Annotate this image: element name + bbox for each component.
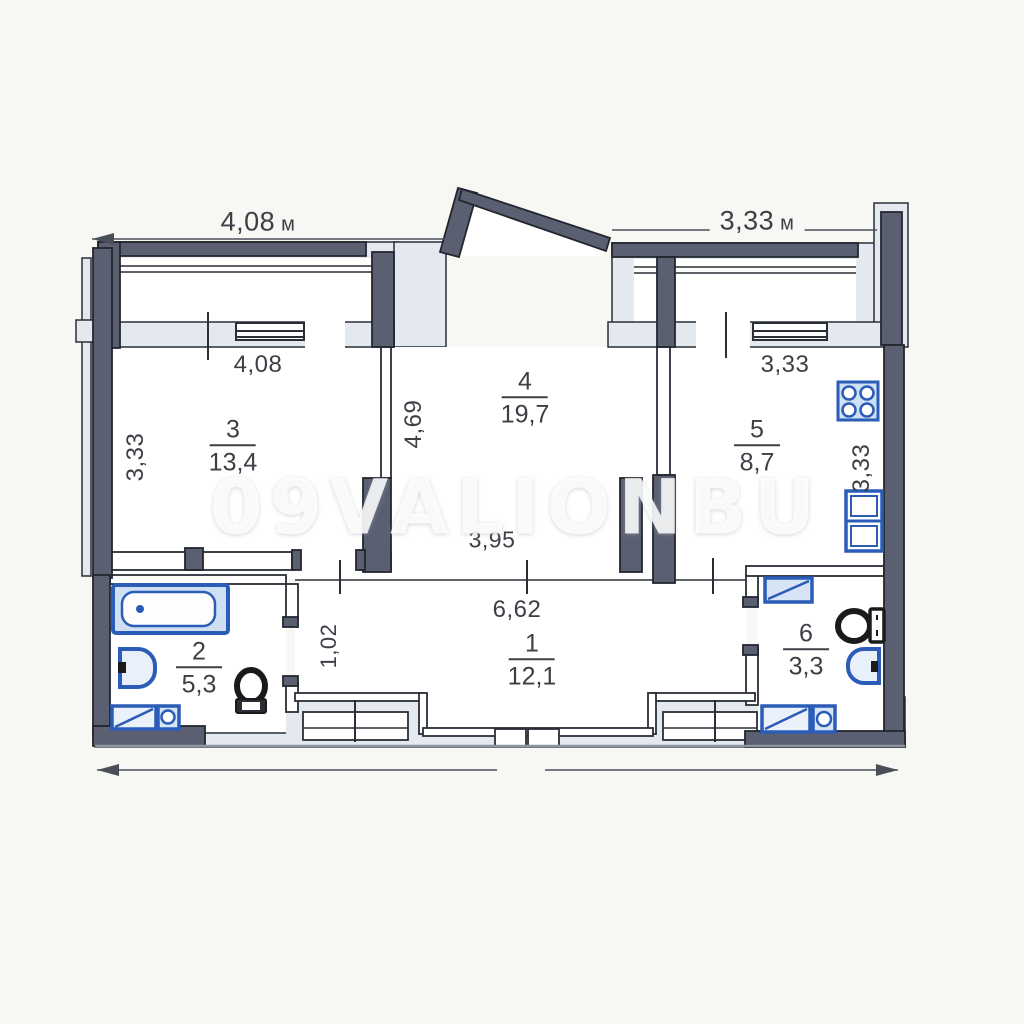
floor-plan: 4,08м 3,33м 4,08 3,33 3,33 4,69 3,33 1,0… <box>0 0 1024 1024</box>
dim-top-left: 4,08м <box>211 207 306 238</box>
room-label-3: 3 13,4 <box>209 416 258 476</box>
room-area: 8,7 <box>740 447 775 476</box>
dim-unit: м <box>780 213 794 235</box>
room-area: 13,4 <box>209 447 258 476</box>
bathtub-icon <box>113 585 228 633</box>
floor-plan-drawing <box>0 0 1024 1024</box>
toilet-icon <box>838 609 884 642</box>
sink-icon <box>848 649 879 683</box>
washing-machine-icon <box>762 706 835 732</box>
dim-top-right: 3,33м <box>710 206 805 237</box>
room-area: 12,1 <box>508 661 557 690</box>
room-area: 3,3 <box>789 651 824 680</box>
room-number: 5 <box>734 416 780 446</box>
room-number: 2 <box>176 638 222 668</box>
dim-kitchen-width: 3,33 <box>761 351 810 379</box>
room-label-5: 5 8,7 <box>734 416 780 476</box>
washing-machine-icon <box>765 578 812 602</box>
dim-hall-corridor: 1,02 <box>316 624 342 669</box>
dim-hall-width: 6,62 <box>493 596 542 624</box>
room-area: 5,3 <box>182 669 217 698</box>
dim-value: 4,08 <box>221 207 276 237</box>
room-number: 3 <box>210 416 256 446</box>
dim-room4-opening: 3,95 <box>469 527 516 554</box>
washing-machine-icon <box>112 706 179 729</box>
dim-room4-depth: 4,69 <box>400 400 428 449</box>
room-number: 4 <box>502 368 548 398</box>
toilet-icon <box>236 670 266 713</box>
room-label-2: 2 5,3 <box>176 638 222 698</box>
sink-icon <box>118 649 155 687</box>
dim-unit: м <box>281 214 295 236</box>
room-label-6: 6 3,3 <box>783 620 829 680</box>
room-label-1: 1 12,1 <box>508 630 557 690</box>
kitchen-sink-icon <box>846 491 882 551</box>
dim-value: 3,33 <box>720 206 775 236</box>
room-area: 19,7 <box>501 399 550 428</box>
dim-kitchen-depth: 3,33 <box>848 444 876 493</box>
room-number: 6 <box>783 620 829 650</box>
dim-room3-depth: 3,33 <box>122 433 150 482</box>
dim-room3-width: 4,08 <box>234 351 283 379</box>
room-number: 1 <box>509 630 555 660</box>
stove-icon <box>838 382 878 420</box>
room-label-4: 4 19,7 <box>501 368 550 428</box>
